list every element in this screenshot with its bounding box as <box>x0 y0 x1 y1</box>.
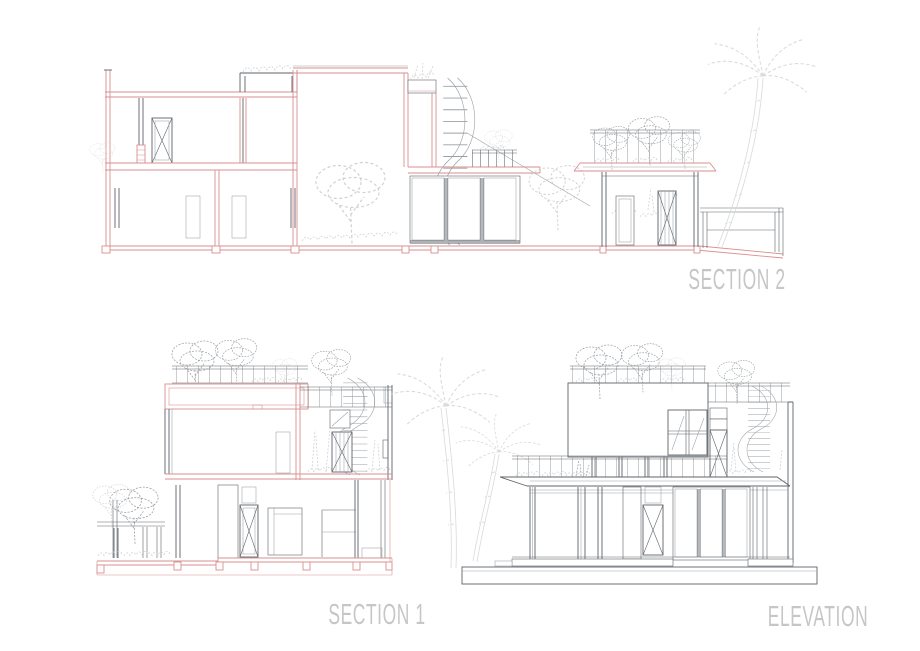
section-1-label: SECTION 1 <box>326 599 428 632</box>
lower-glazing <box>115 188 295 228</box>
sliding-glass-doors <box>673 487 750 560</box>
architectural-drawing-canvas <box>0 0 920 651</box>
roof-shrubs <box>243 66 291 73</box>
floor-slab-cut <box>165 474 392 479</box>
sliding-glass-doors <box>410 176 520 243</box>
tower-window <box>330 410 350 428</box>
ground-planting <box>302 232 398 241</box>
section-1-drawing <box>93 339 392 575</box>
section-2-label: SECTION 2 <box>686 264 788 297</box>
ground-floor <box>93 480 390 562</box>
drawing-sheet: SECTION 2 SECTION 1 ELEVATION <box>0 0 920 651</box>
left-block-section <box>90 66 297 247</box>
roof-slab-cut <box>165 384 308 409</box>
upper-door-x <box>152 118 172 163</box>
section-2-drawing <box>90 25 816 258</box>
ground-door-x <box>643 505 663 555</box>
double-height-block-section <box>293 63 590 246</box>
tower-door-x <box>332 432 352 472</box>
pavilion-door <box>616 196 634 245</box>
stair-tower <box>296 350 392 480</box>
palm-tree <box>391 355 499 568</box>
wall-plant <box>90 143 115 173</box>
brick-pier <box>218 485 238 558</box>
pavilion-section <box>574 25 816 256</box>
foundation-tabs <box>102 246 700 253</box>
brick-pier <box>623 487 641 559</box>
ground-floor <box>512 487 790 560</box>
elevation-drawing <box>391 344 817 584</box>
base-platform <box>462 559 817 584</box>
door-opening <box>232 196 246 238</box>
door-opening <box>186 196 200 238</box>
upper-room <box>165 409 290 474</box>
terrace-railing <box>472 130 517 167</box>
palm-tree <box>456 412 541 562</box>
furniture <box>268 508 356 557</box>
upper-glazing <box>139 98 143 145</box>
roof-garden <box>570 344 706 399</box>
mid-terrace-railing <box>512 456 727 477</box>
palm-tree <box>708 25 816 247</box>
elevation-label: ELEVATION <box>767 601 869 634</box>
courtyard-tree <box>316 163 385 244</box>
ground-door-x <box>240 505 258 557</box>
four-pane-window <box>668 410 707 455</box>
low-garden-wall <box>700 208 783 256</box>
garden-tree <box>93 484 130 527</box>
interior-door <box>276 432 290 473</box>
pavilion-door-x <box>658 191 676 245</box>
ground-slab-cut <box>97 558 392 575</box>
ground-cut-line <box>105 246 783 258</box>
roof-garden <box>590 117 700 170</box>
